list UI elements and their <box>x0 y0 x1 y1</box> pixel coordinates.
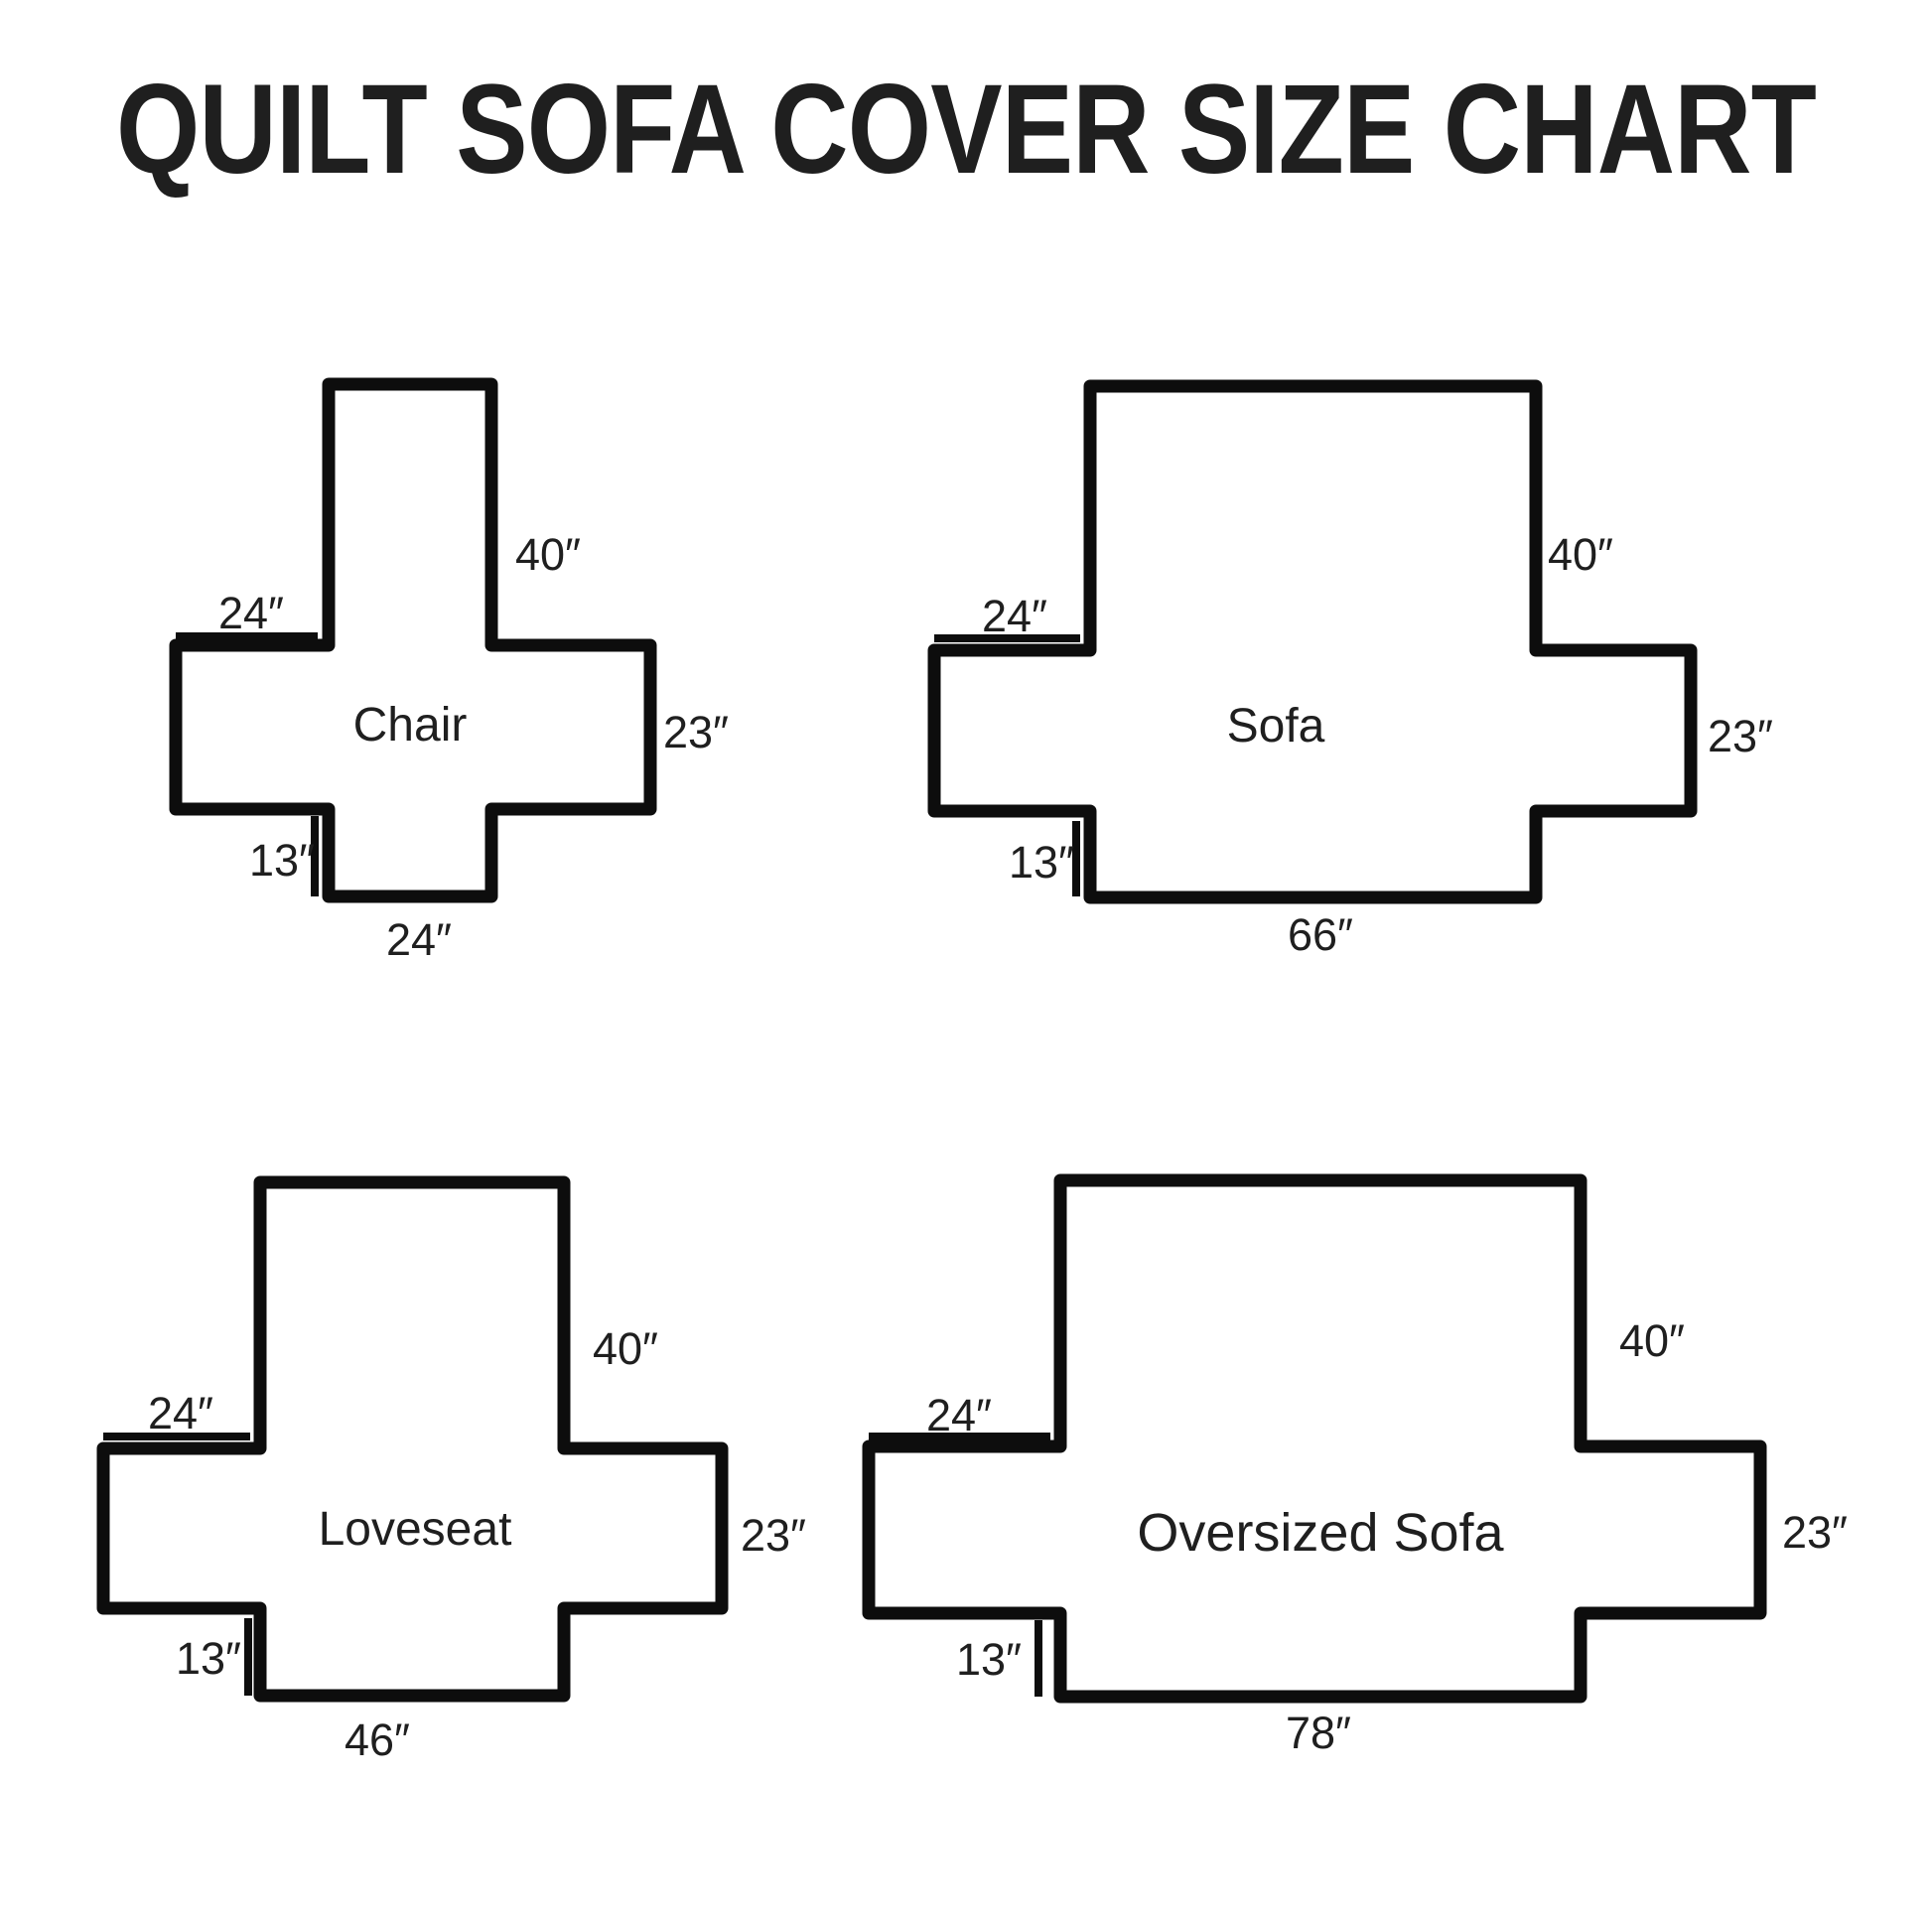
oversized-sofa-flap-drop-label: 13″ <box>956 1634 1022 1685</box>
sofa-name-label: Sofa <box>1227 700 1325 753</box>
oversized-sofa-arm-depth-label: 24″ <box>926 1390 992 1440</box>
chair-name-label: Chair <box>353 699 468 752</box>
loveseat-bottom-width-label: 46″ <box>345 1714 410 1765</box>
loveseat-back-height-label: 40″ <box>593 1323 658 1374</box>
oversized-sofa-back-height-label: 40″ <box>1619 1315 1685 1366</box>
chair-flap-drop-label: 13″ <box>249 835 315 886</box>
chair-arm-height-label: 23″ <box>663 707 729 757</box>
chair-arm-depth-label: 24″ <box>218 588 284 638</box>
chair-back-height-label: 40″ <box>515 529 581 580</box>
oversized-sofa-name-label: Oversized Sofa <box>1137 1503 1504 1563</box>
loveseat-diagram: 40″ 24″ 23″ 13″ 46″ Loveseat <box>103 1182 806 1765</box>
oversized-sofa-diagram: 40″ 24″ 23″ 13″ 78″ Oversized Sofa <box>869 1180 1848 1758</box>
page-title: QUILT SOFA COVER SIZE CHART <box>116 59 1816 201</box>
oversized-sofa-bottom-width-label: 78″ <box>1286 1708 1351 1758</box>
sofa-bottom-width-label: 66″ <box>1288 909 1353 960</box>
sofa-diagram: 40″ 24″ 23″ 13″ 66″ Sofa <box>934 386 1773 960</box>
chair-diagram: 40″ 24″ 23″ 13″ 24″ Chair <box>176 384 729 965</box>
loveseat-arm-height-label: 23″ <box>741 1510 806 1561</box>
sofa-flap-drop-label: 13″ <box>1009 837 1074 888</box>
sofa-back-height-label: 40″ <box>1548 529 1613 580</box>
loveseat-flap-drop-label: 13″ <box>176 1633 241 1684</box>
sofa-arm-height-label: 23″ <box>1708 711 1773 761</box>
size-chart-page: QUILT SOFA COVER SIZE CHART 40″ 24″ 23″ … <box>0 0 1932 1918</box>
chair-bottom-width-label: 24″ <box>386 914 452 965</box>
oversized-sofa-arm-height-label: 23″ <box>1782 1507 1848 1558</box>
loveseat-name-label: Loveseat <box>319 1503 512 1556</box>
loveseat-arm-depth-label: 24″ <box>148 1388 213 1438</box>
sofa-arm-depth-label: 24″ <box>982 591 1047 641</box>
